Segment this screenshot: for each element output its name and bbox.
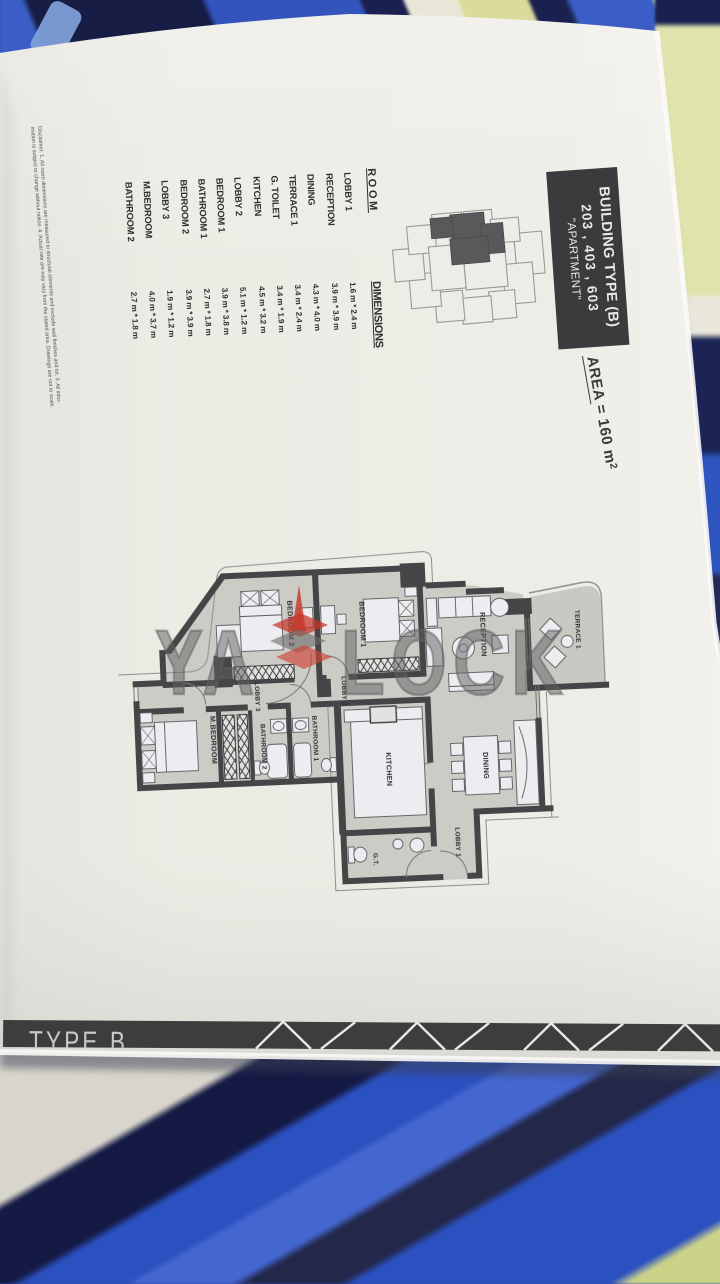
svg-text:TYPE B: TYPE B: [29, 1024, 128, 1056]
svg-text:G.T.: G.T.: [371, 853, 379, 866]
svg-text:KITCHEN: KITCHEN: [384, 752, 394, 786]
svg-text:DINING: DINING: [481, 752, 491, 779]
svg-text:LOBBY 1: LOBBY 1: [453, 827, 461, 857]
